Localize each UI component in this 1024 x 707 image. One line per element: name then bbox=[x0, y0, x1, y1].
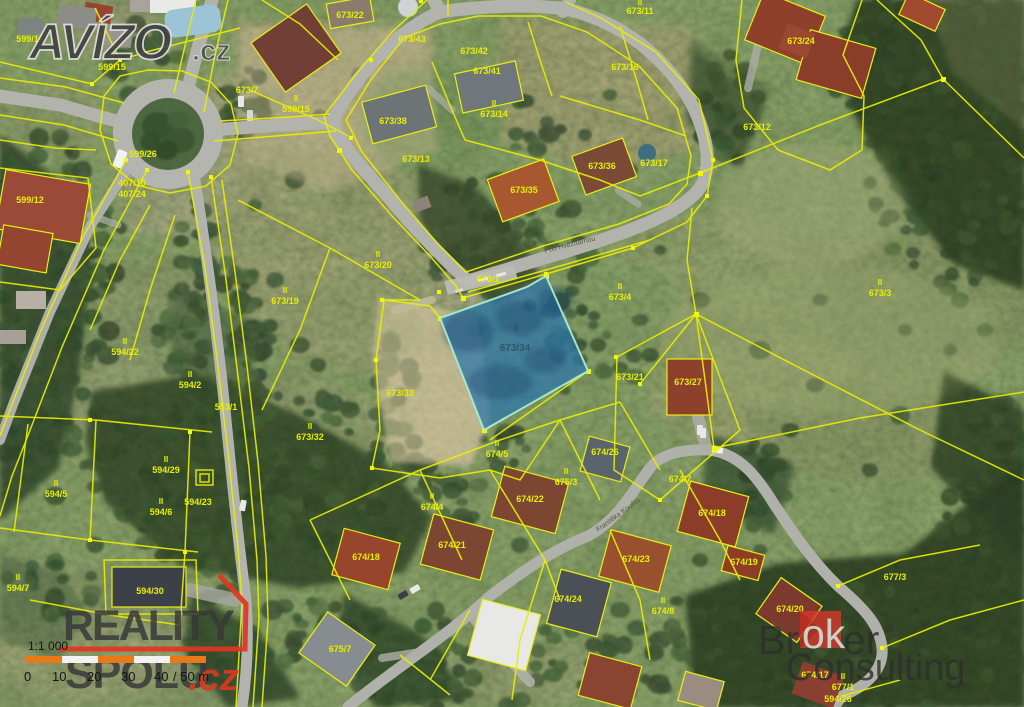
svg-text:594/2: 594/2 bbox=[179, 380, 202, 390]
svg-text:594/29: 594/29 bbox=[152, 465, 180, 475]
svg-text:673/27: 673/27 bbox=[674, 377, 702, 387]
svg-text:674/7: 674/7 bbox=[669, 474, 692, 484]
svg-text:674/26: 674/26 bbox=[591, 447, 619, 457]
svg-text:673/1: 673/1 bbox=[477, 274, 500, 284]
svg-text:594/23: 594/23 bbox=[184, 497, 212, 507]
svg-text:II: II bbox=[495, 439, 499, 448]
svg-text:673/33: 673/33 bbox=[386, 388, 414, 398]
svg-text:II: II bbox=[294, 94, 298, 103]
svg-text:Consulting: Consulting bbox=[786, 647, 966, 689]
svg-text:II: II bbox=[564, 467, 568, 476]
svg-text:®: ® bbox=[884, 621, 893, 635]
svg-text:674/21: 674/21 bbox=[438, 540, 466, 550]
svg-text:673/36: 673/36 bbox=[588, 161, 616, 171]
svg-text:673/42: 673/42 bbox=[460, 46, 488, 56]
svg-text:673/34: 673/34 bbox=[500, 343, 531, 354]
svg-text:0: 0 bbox=[24, 669, 31, 684]
svg-text:599/15: 599/15 bbox=[282, 104, 310, 114]
svg-text:REALITY: REALITY bbox=[63, 602, 234, 650]
svg-text:675/7: 675/7 bbox=[329, 644, 352, 654]
svg-text:.cz: .cz bbox=[192, 35, 231, 67]
svg-text:673/43: 673/43 bbox=[398, 34, 426, 44]
svg-text:II: II bbox=[430, 492, 434, 501]
svg-text:673/14: 673/14 bbox=[480, 109, 508, 119]
svg-text:II: II bbox=[618, 282, 622, 291]
svg-text:1:1 000: 1:1 000 bbox=[28, 639, 68, 653]
svg-text:II: II bbox=[878, 278, 882, 287]
svg-text:II: II bbox=[54, 479, 58, 488]
svg-text:673/16: 673/16 bbox=[611, 62, 639, 72]
svg-text:594/22: 594/22 bbox=[111, 347, 139, 357]
svg-text:II: II bbox=[638, 0, 642, 7]
svg-text:AVÍZO: AVÍZO bbox=[27, 14, 172, 70]
svg-text:II: II bbox=[376, 250, 380, 259]
svg-text:673/24: 673/24 bbox=[787, 36, 815, 46]
svg-text:674/18: 674/18 bbox=[352, 552, 380, 562]
svg-text:677/3: 677/3 bbox=[884, 572, 907, 582]
svg-text:599/26: 599/26 bbox=[129, 149, 157, 159]
svg-text:673/35: 673/35 bbox=[510, 185, 538, 195]
svg-text:II: II bbox=[123, 337, 127, 346]
svg-text:30: 30 bbox=[121, 669, 135, 684]
svg-text:673/41: 673/41 bbox=[473, 66, 501, 76]
svg-text:II: II bbox=[283, 286, 287, 295]
svg-text:II: II bbox=[661, 596, 665, 605]
svg-text:674/24: 674/24 bbox=[554, 594, 582, 604]
svg-text:594/26: 594/26 bbox=[824, 694, 852, 704]
svg-text:674/20: 674/20 bbox=[776, 604, 804, 614]
svg-text:594/7: 594/7 bbox=[7, 583, 30, 593]
svg-text:673/22: 673/22 bbox=[336, 10, 364, 20]
svg-text:675/3: 675/3 bbox=[555, 477, 578, 487]
svg-text:673/20: 673/20 bbox=[364, 260, 392, 270]
svg-text:594/6: 594/6 bbox=[150, 507, 173, 517]
svg-text:673/7: 673/7 bbox=[236, 85, 259, 95]
svg-text:594/30: 594/30 bbox=[136, 586, 164, 596]
svg-text:II: II bbox=[308, 422, 312, 431]
svg-text:II: II bbox=[16, 573, 20, 582]
svg-text:674/19: 674/19 bbox=[730, 557, 758, 567]
svg-text:674/4: 674/4 bbox=[421, 502, 444, 512]
svg-text:II: II bbox=[513, 323, 518, 333]
svg-text:II: II bbox=[492, 99, 496, 108]
svg-text:20: 20 bbox=[87, 669, 101, 684]
svg-text:553/1: 553/1 bbox=[215, 402, 238, 412]
svg-text:673/11: 673/11 bbox=[626, 6, 653, 16]
svg-text:674/23: 674/23 bbox=[622, 554, 650, 564]
svg-text:594/5: 594/5 bbox=[45, 489, 68, 499]
svg-text:599/12: 599/12 bbox=[16, 195, 44, 205]
svg-text:673/17: 673/17 bbox=[640, 158, 668, 168]
svg-text:674/5: 674/5 bbox=[486, 449, 509, 459]
svg-text:407/10: 407/10 bbox=[118, 178, 146, 188]
svg-text:II: II bbox=[164, 455, 168, 464]
svg-text:/ 50 m: / 50 m bbox=[173, 669, 209, 684]
svg-text:673/21: 673/21 bbox=[616, 372, 644, 382]
svg-text:673/4: 673/4 bbox=[609, 292, 632, 302]
svg-text:674/18: 674/18 bbox=[698, 508, 726, 518]
svg-text:673/13: 673/13 bbox=[402, 154, 430, 164]
svg-text:40: 40 bbox=[154, 669, 168, 684]
svg-text:10: 10 bbox=[52, 669, 66, 684]
svg-text:673/3: 673/3 bbox=[869, 288, 892, 298]
svg-text:II: II bbox=[188, 370, 192, 379]
svg-text:673/19: 673/19 bbox=[271, 296, 299, 306]
svg-text:407/24: 407/24 bbox=[118, 189, 146, 199]
svg-text:673/32: 673/32 bbox=[296, 432, 324, 442]
svg-text:674/8: 674/8 bbox=[652, 606, 675, 616]
svg-text:673/12: 673/12 bbox=[743, 122, 771, 132]
svg-text:674/22: 674/22 bbox=[516, 494, 544, 504]
svg-text:II: II bbox=[159, 497, 163, 506]
svg-text:673/38: 673/38 bbox=[379, 116, 407, 126]
